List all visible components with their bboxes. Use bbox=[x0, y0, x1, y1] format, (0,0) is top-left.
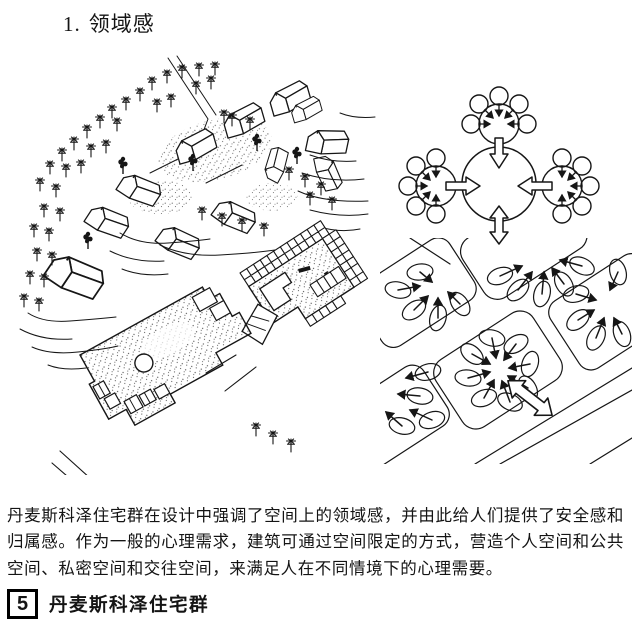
caption-number-box: 5 bbox=[7, 589, 38, 619]
section-title-text: 领域感 bbox=[89, 12, 155, 36]
body-paragraph: 丹麦斯科泽住宅群在设计中强调了空间上的领域感，并由此给人们提供了安全感和归属感。… bbox=[7, 503, 624, 583]
ellipse-cluster-upper-left bbox=[384, 262, 474, 332]
ellipse-cluster-bottom-left bbox=[386, 361, 447, 437]
territory-circles-figure bbox=[398, 80, 632, 250]
ellipse-cluster-right bbox=[561, 257, 632, 353]
cluster-top bbox=[462, 87, 536, 144]
street-blocks-figure bbox=[380, 238, 632, 464]
ellipse-cluster-top bbox=[485, 253, 597, 308]
section-title: 1.领域感 bbox=[63, 8, 155, 38]
book-page: 1.领域感 bbox=[0, 0, 632, 632]
caption-number: 5 bbox=[17, 594, 28, 614]
site-drawing-figure bbox=[10, 55, 402, 475]
caption-title: 丹麦斯科泽住宅群 bbox=[49, 591, 209, 617]
block-arrows bbox=[446, 138, 552, 244]
section-number: 1. bbox=[63, 12, 81, 36]
block-arrow-double-icon bbox=[501, 372, 559, 424]
figure-caption: 5 丹麦斯科泽住宅群 bbox=[7, 589, 209, 619]
